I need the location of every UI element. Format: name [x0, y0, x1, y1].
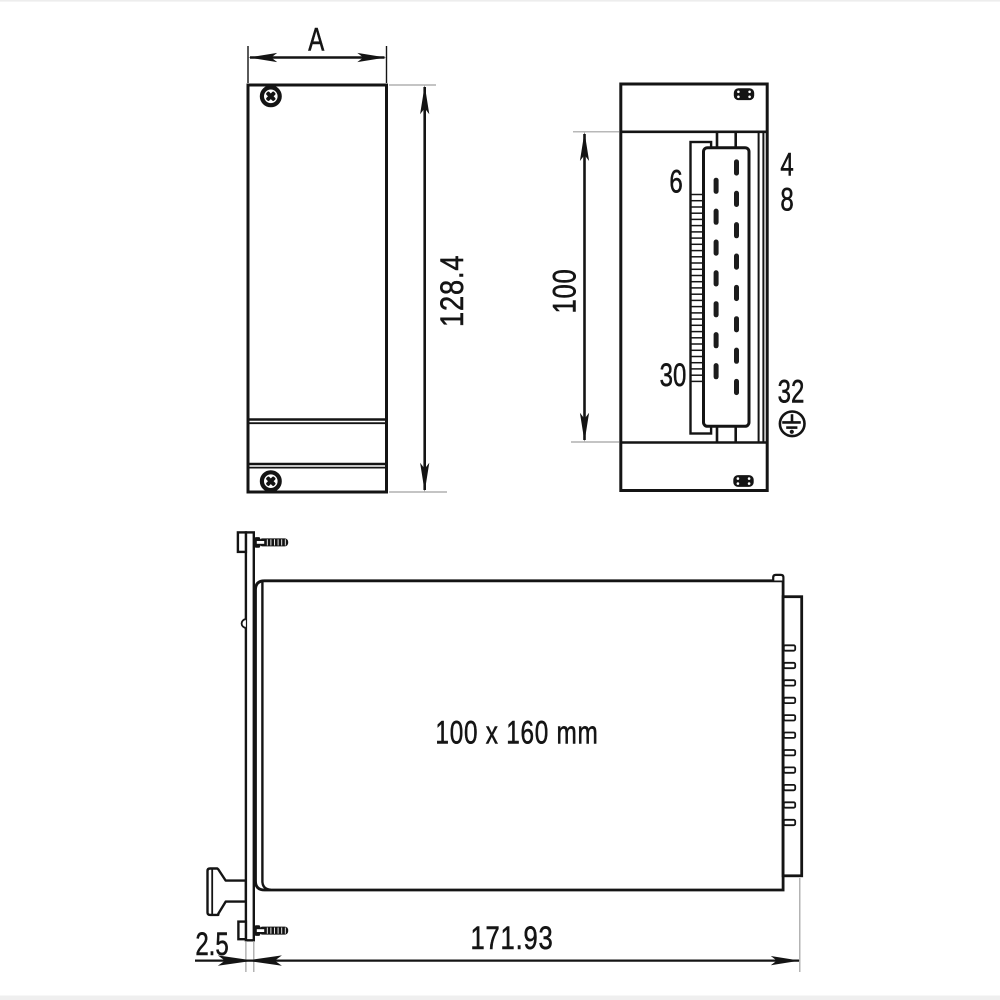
svg-text:171.93: 171.93 [470, 921, 553, 956]
svg-text:4: 4 [780, 146, 793, 182]
svg-text:30: 30 [660, 356, 687, 392]
svg-text:2.5: 2.5 [195, 926, 228, 962]
svg-text:6: 6 [669, 163, 682, 199]
svg-text:100: 100 [548, 268, 583, 313]
svg-text:100 x 160 mm: 100 x 160 mm [435, 715, 598, 751]
svg-text:128.4: 128.4 [435, 255, 471, 327]
svg-text:A: A [308, 21, 324, 57]
svg-text:8: 8 [780, 181, 793, 217]
svg-text:32: 32 [778, 373, 805, 409]
